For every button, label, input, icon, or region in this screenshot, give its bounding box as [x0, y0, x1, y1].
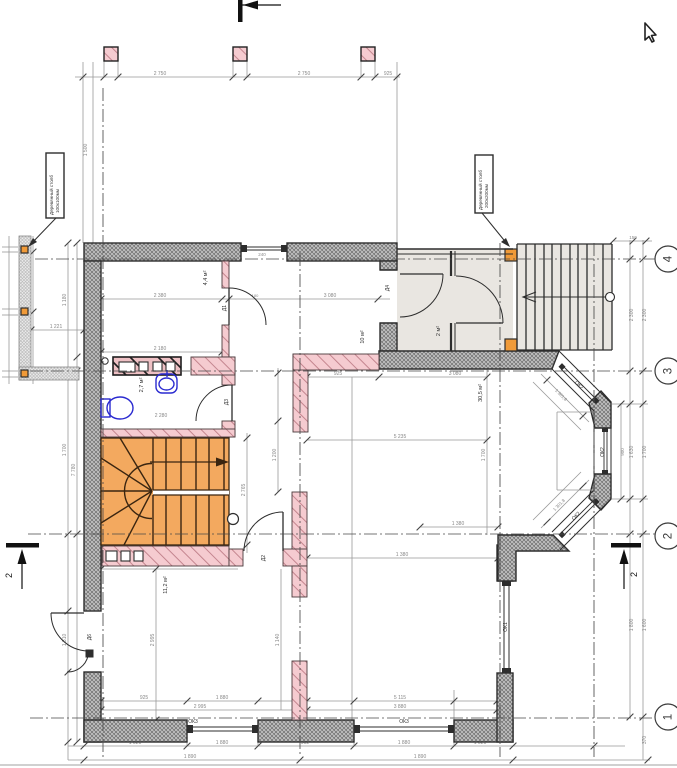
svg-text:2 750: 2 750	[298, 71, 311, 77]
svg-text:3: 3	[663, 368, 675, 374]
svg-text:1 301,8: 1 301,8	[554, 388, 569, 403]
svg-text:2: 2	[4, 573, 14, 578]
svg-text:Д3: Д3	[224, 399, 230, 405]
svg-text:4,4 м²: 4,4 м²	[203, 270, 209, 285]
svg-text:1 700: 1 700	[481, 449, 487, 462]
svg-text:3 080: 3 080	[449, 371, 462, 377]
svg-text:ОК3: ОК3	[188, 719, 198, 725]
svg-text:240: 240	[258, 252, 266, 257]
svg-text:1 380: 1 380	[396, 552, 409, 558]
svg-text:10 м²: 10 м²	[360, 330, 366, 343]
svg-text:2 765: 2 765	[241, 484, 247, 497]
svg-text:3 880: 3 880	[394, 704, 407, 710]
svg-text:1 800: 1 800	[629, 619, 635, 632]
svg-text:1 140: 1 140	[275, 634, 281, 647]
svg-text:2 995: 2 995	[150, 634, 156, 647]
svg-text:2 300: 2 300	[642, 309, 648, 322]
svg-text:200х200мм: 200х200мм	[484, 184, 489, 208]
svg-text:2 м²: 2 м²	[436, 326, 442, 336]
svg-text:1 880: 1 880	[216, 695, 229, 701]
svg-text:ОК3: ОК3	[399, 719, 409, 725]
svg-text:4: 4	[663, 255, 675, 262]
svg-text:925: 925	[140, 695, 149, 701]
svg-text:ОК2: ОК2	[571, 511, 582, 522]
svg-text:Д2: Д2	[261, 555, 267, 561]
svg-text:1 880: 1 880	[216, 740, 229, 746]
svg-text:1 180: 1 180	[62, 294, 68, 307]
svg-text:370: 370	[642, 736, 648, 745]
svg-text:Д4: Д4	[385, 285, 391, 291]
svg-text:ОК2: ОК2	[600, 447, 606, 457]
svg-text:1 700: 1 700	[62, 444, 68, 457]
svg-text:1 880: 1 880	[398, 740, 411, 746]
svg-text:1 380: 1 380	[452, 521, 465, 527]
svg-text:2 750: 2 750	[154, 71, 167, 77]
svg-text:1 600: 1 600	[642, 619, 648, 632]
svg-text:Д1: Д1	[222, 305, 228, 311]
svg-text:Деревянный столб: Деревянный столб	[477, 170, 483, 210]
svg-text:ОК2: ОК2	[573, 380, 584, 391]
svg-text:1 500: 1 500	[83, 144, 89, 157]
svg-text:2 300: 2 300	[629, 309, 635, 322]
svg-text:7 780: 7 780	[71, 464, 77, 477]
svg-text:2,7 м²: 2,7 м²	[139, 377, 145, 392]
svg-text:11,2 м²: 11,2 м²	[163, 576, 169, 594]
svg-text:100х100мм: 100х100мм	[55, 189, 60, 213]
svg-text:2: 2	[663, 533, 675, 539]
svg-text:1 630: 1 630	[629, 446, 635, 459]
svg-text:150: 150	[629, 235, 637, 240]
svg-text:2 180: 2 180	[154, 346, 167, 352]
svg-text:1 890: 1 890	[414, 754, 427, 760]
svg-text:2 380: 2 380	[154, 293, 167, 299]
svg-text:2 280: 2 280	[155, 413, 168, 419]
svg-text:1: 1	[663, 714, 675, 720]
svg-text:Деревянный столб: Деревянный столб	[48, 175, 54, 215]
svg-text:3 080: 3 080	[324, 293, 337, 299]
svg-text:5 115: 5 115	[394, 695, 406, 701]
svg-text:Д6: Д6	[87, 634, 93, 640]
svg-text:30,5 м²: 30,5 м²	[478, 384, 484, 402]
svg-text:925: 925	[334, 371, 343, 377]
svg-text:ОК1: ОК1	[503, 622, 509, 632]
svg-text:900: 900	[620, 448, 625, 456]
svg-text:2 995: 2 995	[194, 704, 207, 710]
svg-text:1 200: 1 200	[272, 449, 278, 462]
svg-text:1 700: 1 700	[642, 446, 648, 459]
svg-text:5 235: 5 235	[394, 434, 407, 440]
svg-text:925: 925	[384, 71, 393, 77]
svg-text:2: 2	[629, 572, 639, 577]
svg-text:1 890: 1 890	[184, 754, 197, 760]
svg-text:1 221: 1 221	[50, 324, 63, 330]
